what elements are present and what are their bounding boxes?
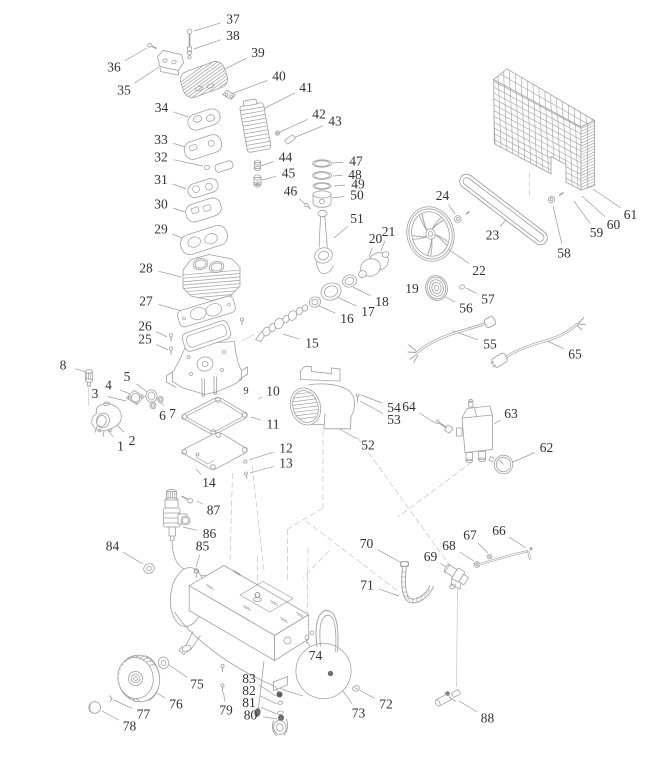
svg-text:55: 55 — [483, 337, 497, 352]
svg-text:28: 28 — [139, 261, 153, 276]
svg-text:74: 74 — [309, 648, 323, 663]
svg-text:77: 77 — [137, 707, 151, 722]
svg-text:25: 25 — [138, 332, 152, 347]
svg-text:70: 70 — [360, 536, 374, 551]
svg-text:72: 72 — [379, 697, 393, 712]
svg-text:88: 88 — [481, 711, 495, 726]
svg-text:64: 64 — [402, 399, 416, 414]
svg-text:51: 51 — [350, 211, 364, 226]
svg-text:29: 29 — [154, 222, 168, 237]
svg-text:58: 58 — [557, 246, 571, 261]
svg-text:83: 83 — [242, 671, 256, 686]
svg-text:73: 73 — [352, 706, 366, 721]
svg-text:38: 38 — [226, 28, 240, 43]
svg-text:68: 68 — [442, 538, 456, 553]
svg-text:5: 5 — [124, 369, 131, 384]
svg-text:84: 84 — [106, 539, 120, 554]
svg-text:65: 65 — [568, 347, 582, 362]
svg-text:30: 30 — [154, 197, 168, 212]
svg-text:24: 24 — [436, 188, 450, 203]
svg-text:78: 78 — [123, 719, 137, 734]
svg-text:45: 45 — [282, 166, 296, 181]
svg-text:54: 54 — [387, 400, 401, 415]
svg-text:13: 13 — [279, 456, 293, 471]
svg-text:35: 35 — [117, 83, 131, 98]
svg-text:61: 61 — [624, 207, 638, 222]
svg-text:6: 6 — [159, 408, 166, 423]
svg-text:32: 32 — [154, 150, 168, 165]
svg-text:37: 37 — [226, 12, 240, 27]
svg-text:71: 71 — [360, 578, 374, 593]
svg-text:75: 75 — [190, 677, 204, 692]
svg-text:87: 87 — [207, 503, 221, 518]
svg-text:31: 31 — [154, 172, 168, 187]
svg-text:50: 50 — [350, 188, 364, 203]
svg-text:43: 43 — [328, 114, 342, 129]
svg-text:42: 42 — [312, 107, 326, 122]
svg-text:79: 79 — [219, 703, 233, 718]
svg-text:23: 23 — [486, 228, 500, 243]
svg-text:18: 18 — [375, 294, 389, 309]
svg-text:22: 22 — [472, 263, 486, 278]
svg-text:40: 40 — [272, 69, 286, 84]
svg-text:15: 15 — [305, 336, 319, 351]
svg-text:66: 66 — [492, 523, 506, 538]
svg-text:8: 8 — [60, 358, 67, 373]
svg-text:39: 39 — [251, 45, 265, 60]
svg-text:36: 36 — [107, 60, 121, 75]
svg-text:34: 34 — [155, 100, 169, 115]
svg-text:4: 4 — [105, 378, 112, 393]
svg-text:12: 12 — [279, 441, 293, 456]
svg-text:59: 59 — [590, 225, 604, 240]
svg-text:9: 9 — [243, 386, 248, 397]
svg-text:63: 63 — [504, 406, 518, 421]
svg-text:19: 19 — [405, 281, 419, 296]
svg-text:46: 46 — [284, 184, 298, 199]
svg-text:86: 86 — [203, 526, 217, 541]
svg-text:44: 44 — [279, 150, 293, 165]
svg-text:26: 26 — [138, 319, 152, 334]
svg-text:62: 62 — [540, 440, 554, 455]
svg-text:1: 1 — [117, 439, 124, 454]
svg-text:41: 41 — [299, 80, 313, 95]
svg-text:11: 11 — [267, 417, 280, 432]
svg-text:16: 16 — [340, 311, 354, 326]
svg-text:33: 33 — [154, 132, 168, 147]
svg-text:17: 17 — [361, 304, 375, 319]
svg-text:69: 69 — [424, 549, 438, 564]
svg-text:60: 60 — [607, 217, 621, 232]
svg-text:21: 21 — [382, 224, 396, 239]
svg-text:67: 67 — [463, 528, 477, 543]
svg-text:20: 20 — [369, 231, 383, 246]
svg-text:3: 3 — [92, 386, 99, 401]
svg-text:7: 7 — [169, 406, 176, 421]
svg-text:76: 76 — [169, 697, 183, 712]
svg-text:52: 52 — [361, 438, 375, 453]
svg-text:10: 10 — [266, 384, 280, 399]
svg-text:57: 57 — [481, 292, 495, 307]
svg-text:27: 27 — [139, 294, 153, 309]
svg-text:56: 56 — [459, 301, 473, 316]
svg-text:14: 14 — [202, 475, 216, 490]
svg-text:2: 2 — [129, 433, 136, 448]
